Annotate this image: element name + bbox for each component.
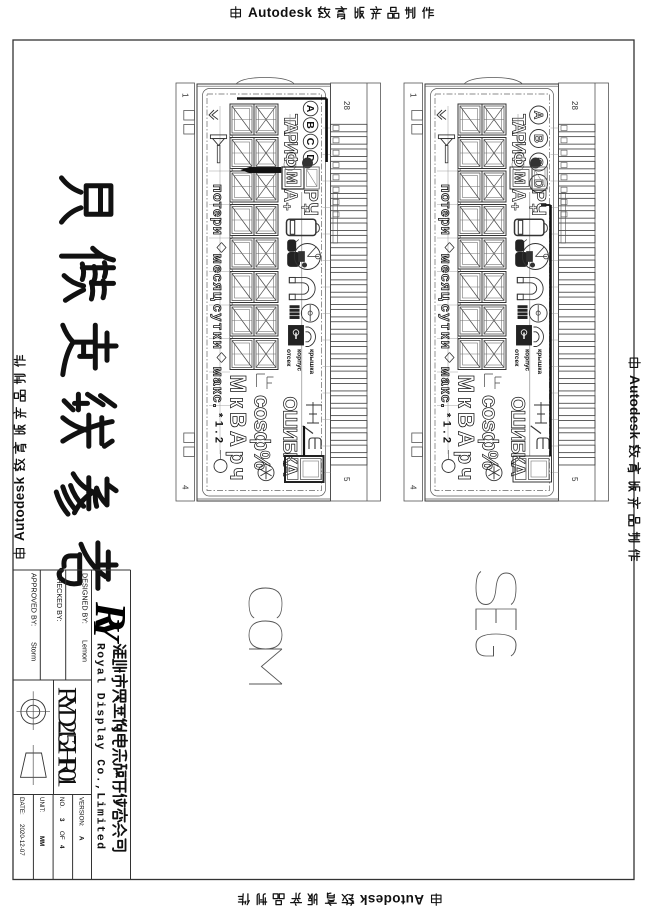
svg-text:Autodesk: Autodesk	[248, 5, 312, 20]
svg-text:Autodesk: Autodesk	[627, 375, 642, 439]
svg-text:C: C	[304, 138, 316, 146]
svg-text:4: 4	[409, 485, 418, 490]
svg-text:потери: потери	[439, 184, 455, 235]
svg-text:UNIT:: UNIT:	[38, 797, 45, 813]
svg-text:CHECKED BY:: CHECKED BY:	[55, 573, 64, 621]
svg-text:макс.: макс.	[211, 367, 227, 408]
svg-text:крышка: крышка	[308, 349, 315, 374]
svg-text:Lemon: Lemon	[80, 640, 89, 662]
svg-text:cosф%: cosф%	[250, 395, 275, 470]
svg-text:М: М	[283, 172, 300, 185]
svg-text:2020-12-07: 2020-12-07	[18, 824, 25, 856]
svg-text:М: М	[511, 172, 528, 185]
svg-text:OF: OF	[58, 831, 65, 840]
svg-text:B: B	[304, 121, 316, 129]
svg-text:месяц: месяц	[211, 254, 227, 301]
svg-text:+: +	[298, 204, 314, 212]
svg-text:ТАРИФ: ТАРИФ	[509, 114, 529, 167]
svg-text:корпус: корпус	[296, 349, 303, 371]
svg-text:+: +	[280, 203, 296, 211]
svg-text:потери: потери	[211, 184, 227, 235]
svg-text:MM: MM	[38, 836, 45, 846]
svg-text:5: 5	[342, 477, 351, 482]
svg-text:+: +	[526, 204, 542, 212]
svg-text:5: 5	[570, 477, 579, 482]
svg-text:А: А	[281, 189, 301, 202]
svg-text:A: A	[78, 836, 85, 841]
svg-text:ТАРИФ: ТАРИФ	[281, 114, 301, 167]
svg-text:1: 1	[409, 93, 418, 98]
svg-text:A: A	[304, 105, 316, 113]
svg-text:28: 28	[570, 101, 579, 110]
svg-text:ОШИБКА: ОШИБКА	[507, 397, 528, 477]
svg-text:макс.: макс.	[439, 367, 455, 408]
svg-text:1: 1	[181, 93, 190, 98]
svg-text:B: B	[531, 134, 545, 143]
svg-text:сутки: сутки	[211, 304, 227, 349]
svg-text:Autodesk: Autodesk	[12, 477, 27, 541]
svg-text:NO.: NO.	[58, 797, 65, 808]
svg-text:Y: Y	[85, 618, 127, 645]
svg-text:APPROVED BY:: APPROVED BY:	[30, 573, 39, 626]
svg-text:VERSION:: VERSION:	[78, 797, 85, 827]
svg-text:RYD2152HR01: RYD2152HR01	[53, 687, 82, 788]
svg-text:отсек: отсек	[513, 349, 520, 367]
svg-text:4: 4	[181, 485, 190, 490]
svg-text:ОШИБКА: ОШИБКА	[279, 397, 300, 477]
svg-text:РЧ: РЧ	[528, 189, 549, 216]
svg-text:A: A	[531, 111, 545, 120]
svg-text:DATE:: DATE:	[18, 797, 25, 815]
svg-text:отсек: отсек	[285, 349, 292, 367]
svg-text:Royal Display Co.,Limited: Royal Display Co.,Limited	[94, 643, 106, 849]
svg-text:А: А	[509, 189, 529, 202]
svg-text:РЧ: РЧ	[300, 189, 321, 216]
svg-text:4: 4	[58, 845, 65, 849]
svg-text:3: 3	[58, 818, 65, 822]
svg-text:+: +	[508, 203, 524, 211]
svg-text:корпус: корпус	[524, 349, 531, 371]
svg-text:Storm: Storm	[30, 642, 39, 661]
svg-text:месяц: месяц	[439, 254, 455, 301]
svg-text:сутки: сутки	[439, 304, 455, 349]
svg-text:28: 28	[342, 101, 351, 110]
svg-text:cosф%: cosф%	[478, 395, 503, 470]
svg-text:Autodesk: Autodesk	[360, 892, 424, 907]
svg-text:крышка: крышка	[536, 349, 543, 374]
